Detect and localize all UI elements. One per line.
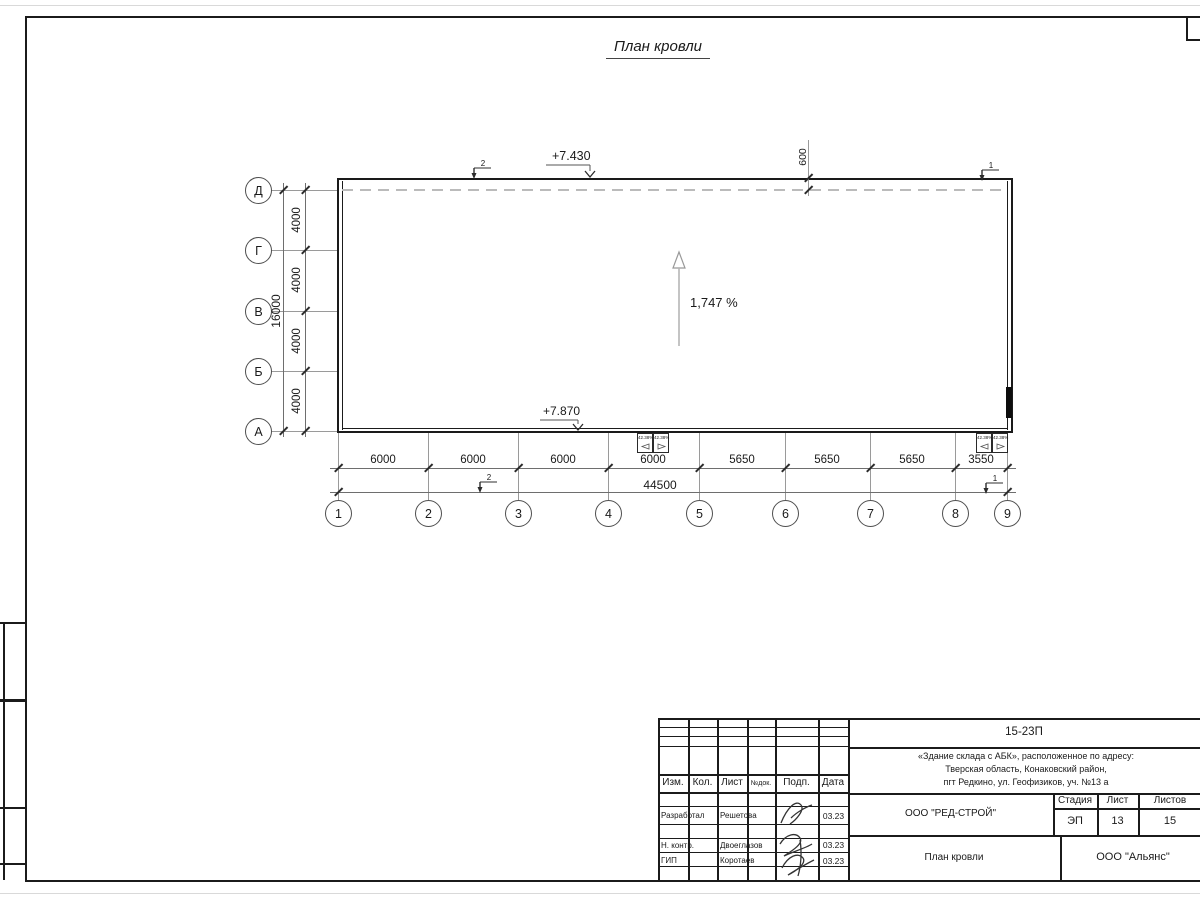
signer-date: 03.23 [820,840,847,850]
grid-bubble-col: 2 [415,500,442,527]
tb-col-izm: Изм. [658,777,688,788]
dim-label: 5650 [717,454,767,466]
section-number: 1 [989,161,994,170]
sheets-value: 15 [1138,815,1200,827]
sheets-label: Листов [1138,795,1200,806]
dim-label: 6000 [358,454,408,466]
tb-hline [658,746,848,747]
tb-hline [658,824,848,825]
wall-dashed-line [342,189,1008,191]
dim-label: 3550 [956,454,1006,466]
dim-label: 4000 [291,198,303,242]
grid-label: Д [254,184,262,198]
side-stamp-rung [0,807,25,809]
signer-name: Решетова [720,811,757,820]
elevation-label-bottom: +7.870 [543,404,580,418]
signer-role: Разработал [661,811,705,820]
grid-label: 2 [425,507,432,521]
tb-hline [658,736,848,737]
tb-hline [658,806,848,807]
drain-cell: 42.38% [637,433,653,453]
signer-role: Н. контр. [661,841,694,850]
drain-cell: 42.38% [992,433,1008,453]
drawing-sheet: План кровли Д Г В Б А 1 [0,0,1200,900]
stage-label: Стадия [1053,795,1097,806]
section-mark-2-bottom: 2 [476,472,500,496]
tb-hline [658,774,848,776]
dim-label: 5650 [887,454,937,466]
page-edge-bottom [0,893,1200,894]
tb-col-kol: Кол. [688,777,717,788]
grid-bubble-row: Б [245,358,272,385]
grid-label: В [254,305,262,319]
dim-line-bottom-total [330,492,1016,493]
tb-col-ndok: №док. [747,780,775,787]
parapet-thick-mark [1006,387,1012,418]
dim-label: 5650 [802,454,852,466]
grid-bubble-col: 3 [505,500,532,527]
dim-label: 4000 [291,379,303,423]
grid-label: 4 [605,507,612,521]
signer-date: 03.23 [820,811,847,821]
tb-hline [658,727,848,728]
tb-vline [717,718,719,882]
dim-label: 6000 [538,454,588,466]
roof-inner-bottom [342,428,1008,429]
sheet-value: 13 [1097,815,1138,827]
signer-date: 03.23 [820,856,847,866]
page-title-text: План кровли [606,38,710,59]
signature-scribble [776,830,818,878]
grid-label: 1 [335,507,342,521]
drain-slope-label: 42.38% [638,435,652,440]
dim-label-total: 44500 [630,478,690,492]
grid-bubble-col: 4 [595,500,622,527]
page-title: План кровли [558,38,758,59]
tb-hline [658,866,848,867]
side-stamp-rung [0,863,25,865]
grid-label: А [254,425,262,439]
roof-inner-left [342,181,343,430]
side-stamp-rung [0,699,25,702]
grid-bubble-col: 5 [686,500,713,527]
elevation-label-top: +7.430 [552,149,591,163]
grid-bubble-row: Д [245,177,272,204]
dim-label: 4000 [291,319,303,363]
drain-cell: 42.38% [653,433,669,453]
tb-hline [848,835,1200,837]
side-stamp-rung [0,622,25,624]
org-name: ООО "Альянс" [1060,851,1200,863]
dim-label: 6000 [628,454,678,466]
signer-name: Коротаев [720,856,755,865]
grid-bubble-col: 8 [942,500,969,527]
sheet-label: Лист [1097,795,1138,806]
tb-hline [1053,808,1200,810]
overhang-dim-label: 600 [797,140,809,174]
side-stamp-line [3,622,5,880]
grid-bubble-col: 1 [325,500,352,527]
project-address-line3: пгт Редкино, ул. Геофизиков, уч. №13 а [852,777,1200,787]
page-edge-top [0,5,1200,6]
grid-bubble-col: 7 [857,500,884,527]
section-mark-1-top: 1 [978,160,1002,184]
signer-name: Двоеглазов [720,841,763,850]
slope-arrow [666,250,692,350]
elevation-leader-top [542,162,598,180]
signature-scribble [778,796,816,830]
drain-detail-right: 42.38% 42.38% [976,433,1008,453]
drain-slope-label: 42.38% [993,435,1007,440]
drain-cell: 42.38% [976,433,992,453]
grid-label: 3 [515,507,522,521]
signer-role: ГИП [661,856,677,865]
tb-vline [688,718,690,882]
stage-value: ЭП [1053,815,1097,827]
project-address-line1: «Здание склада с АБК», расположенное по … [852,751,1200,761]
grid-label: 8 [952,507,959,521]
tb-col-list: Лист [717,777,747,788]
grid-label: 9 [1004,507,1011,521]
grid-label: 5 [696,507,703,521]
dim-line-bottom-bays [330,468,1016,469]
company-name: ООО "РЕД-СТРОЙ" [848,808,1053,819]
frame-corner-box [1186,16,1200,41]
drain-slope-label: 42.38% [654,435,668,440]
section-mark-2-top: 2 [470,158,494,182]
grid-label: 7 [867,507,874,521]
dim-line-left-total [283,183,284,437]
tb-hline [658,838,848,839]
tb-hline [848,747,1200,749]
grid-label: 6 [782,507,789,521]
dim-label-total: 16000 [269,283,283,339]
drain-slope-label: 42.38% [977,435,991,440]
grid-label: Б [254,365,262,379]
grid-bubble-row: В [245,298,272,325]
tb-col-data: Дата [818,777,848,788]
grid-bubble-col: 6 [772,500,799,527]
slope-label: 1,747 % [690,295,738,310]
section-number: 2 [481,159,486,168]
tb-col-podp: Подп. [775,777,818,788]
section-number: 1 [993,474,998,483]
tb-hline [658,792,848,794]
sheet-title: План кровли [848,852,1060,863]
grid-label: Г [255,244,262,258]
dim-label: 6000 [448,454,498,466]
section-mark-1-bottom: 1 [982,473,1006,497]
grid-bubble-row: А [245,418,272,445]
tb-hline [658,852,848,853]
drain-detail-left: 42.38% 42.38% [637,433,669,453]
dim-label: 4000 [291,258,303,302]
project-address-line2: Тверская область, Конаковский район, [852,764,1200,774]
elevation-leader-bottom [536,418,588,434]
grid-bubble-col: 9 [994,500,1021,527]
section-number: 2 [487,473,492,482]
grid-bubble-row: Г [245,237,272,264]
doc-number: 15-23П [848,726,1200,738]
